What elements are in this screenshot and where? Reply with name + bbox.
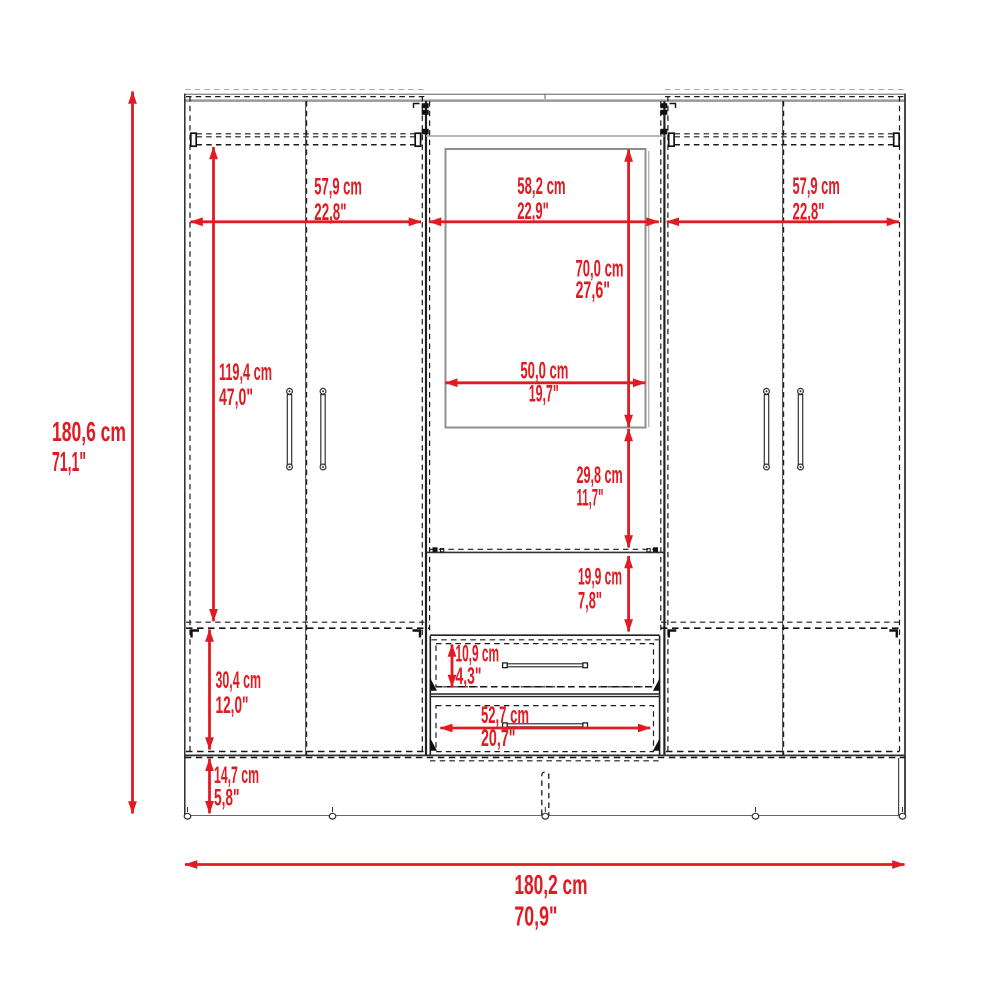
svg-text:180,2 cm: 180,2 cm bbox=[514, 869, 587, 900]
svg-text:4,3": 4,3" bbox=[456, 663, 482, 690]
svg-text:22,8": 22,8" bbox=[793, 199, 825, 226]
svg-text:27,6": 27,6" bbox=[576, 277, 611, 304]
svg-text:57,9 cm: 57,9 cm bbox=[793, 173, 840, 200]
svg-text:71,1": 71,1" bbox=[52, 446, 86, 477]
svg-text:20,7": 20,7" bbox=[481, 725, 516, 752]
svg-text:11,7": 11,7" bbox=[577, 485, 604, 512]
svg-text:180,6 cm: 180,6 cm bbox=[52, 416, 126, 447]
svg-text:19,7": 19,7" bbox=[529, 381, 559, 408]
svg-text:22,9": 22,9" bbox=[517, 198, 549, 225]
svg-text:119,4 cm: 119,4 cm bbox=[219, 359, 272, 386]
svg-text:70,9": 70,9" bbox=[514, 901, 557, 932]
svg-text:58,2 cm: 58,2 cm bbox=[517, 173, 565, 200]
svg-text:12,0": 12,0" bbox=[216, 692, 249, 719]
svg-text:22,8": 22,8" bbox=[314, 199, 346, 226]
svg-text:19,9 cm: 19,9 cm bbox=[578, 564, 622, 591]
svg-text:30,4 cm: 30,4 cm bbox=[216, 667, 262, 694]
svg-text:57,9 cm: 57,9 cm bbox=[314, 173, 362, 200]
svg-text:47,0": 47,0" bbox=[219, 384, 253, 411]
svg-text:7,8": 7,8" bbox=[578, 588, 602, 615]
svg-text:5,8": 5,8" bbox=[214, 785, 240, 812]
